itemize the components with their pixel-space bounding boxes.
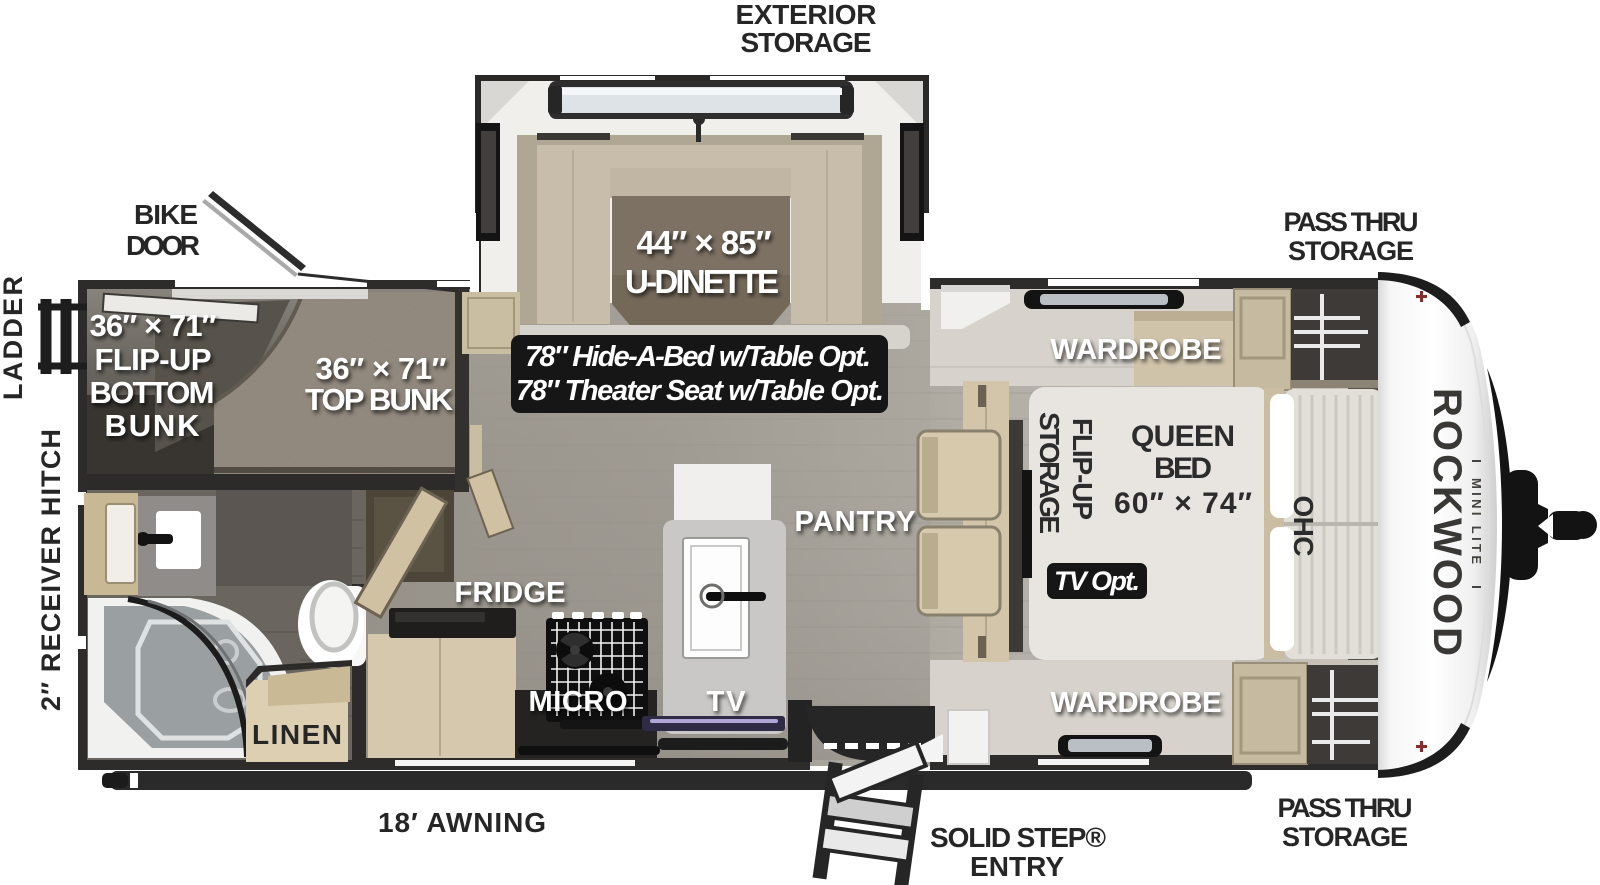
svg-text:ENTRY: ENTRY [970, 851, 1064, 882]
svg-text:BOTTOM: BOTTOM [90, 375, 215, 410]
svg-text:QUEEN: QUEEN [1131, 420, 1235, 453]
svg-text:SOLID STEP®: SOLID STEP® [930, 822, 1106, 853]
svg-text:STORAGE: STORAGE [1034, 412, 1065, 534]
svg-text:LINEN: LINEN [252, 719, 342, 750]
svg-text:78″ Theater Seat w/Table Opt.: 78″ Theater Seat w/Table Opt. [516, 375, 884, 407]
svg-text:ROCKWOOD: ROCKWOOD [1425, 388, 1469, 660]
svg-text:18′ AWNING: 18′ AWNING [378, 807, 546, 838]
svg-text:MINI LITE: MINI LITE [1469, 478, 1484, 568]
svg-text:WARDROBE: WARDROBE [1051, 687, 1222, 719]
svg-text:TOP BUNK: TOP BUNK [305, 382, 454, 417]
svg-text:78″ Hide-A-Bed w/Table Opt.: 78″ Hide-A-Bed w/Table Opt. [525, 341, 871, 373]
svg-text:WARDROBE: WARDROBE [1051, 334, 1222, 366]
svg-text:FLIP-UP: FLIP-UP [95, 342, 212, 377]
svg-text:DOOR: DOOR [126, 230, 200, 261]
svg-text:PASS THRU: PASS THRU [1284, 207, 1419, 237]
svg-text:TV: TV [707, 686, 747, 718]
svg-text:BUNK: BUNK [105, 408, 201, 443]
svg-text:2″ RECEIVER HITCH: 2″ RECEIVER HITCH [36, 429, 66, 711]
svg-text:PASS THRU: PASS THRU [1278, 793, 1413, 823]
svg-text:44″ × 85″: 44″ × 85″ [637, 224, 772, 261]
svg-text:36″ × 71″: 36″ × 71″ [90, 308, 217, 343]
svg-text:BED: BED [1154, 452, 1212, 485]
svg-text:OHC: OHC [1288, 496, 1319, 557]
svg-text:60″ × 74″: 60″ × 74″ [1114, 487, 1252, 520]
svg-text:FRIDGE: FRIDGE [455, 577, 566, 609]
svg-text:PANTRY: PANTRY [795, 506, 916, 538]
svg-text:FLIP-UP: FLIP-UP [1067, 418, 1098, 520]
svg-text:STORAGE: STORAGE [741, 27, 872, 58]
svg-text:U-DINETTE: U-DINETTE [625, 263, 779, 300]
svg-text:BIKE: BIKE [134, 199, 198, 230]
svg-text:STORAGE: STORAGE [1288, 236, 1414, 266]
svg-text:36″ × 71″: 36″ × 71″ [316, 351, 447, 386]
svg-text:STORAGE: STORAGE [1282, 822, 1408, 852]
svg-text:EXTERIOR: EXTERIOR [736, 0, 877, 30]
svg-text:LADDER: LADDER [0, 276, 28, 400]
svg-text:TV Opt.: TV Opt. [1054, 566, 1140, 596]
svg-text:MICRO: MICRO [529, 686, 628, 718]
